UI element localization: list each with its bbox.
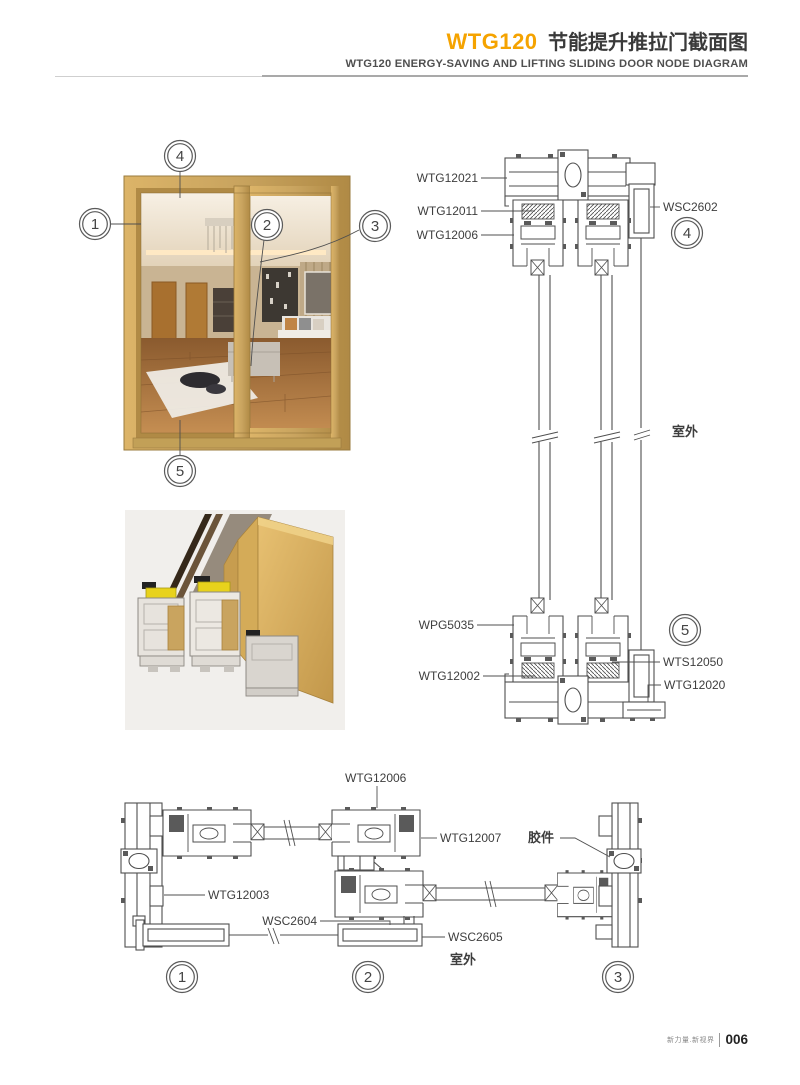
callout-4: 4 [176,148,184,165]
profile-render [125,510,345,730]
section-circle-1: 1 [178,969,186,986]
sash-row1-middle [332,807,420,859]
catalog-page: WTG120 节能提升推拉门截面图 WTG120 ENERGY-SAVING A… [0,0,800,1085]
label-wsc2605: WSC2605 [448,930,503,944]
glue-part-leader [560,838,610,857]
label-wpg5035: WPG5035 [419,618,475,632]
page-number: 006 [725,1032,748,1047]
sash-row2-middle [335,868,423,920]
page-header: WTG120 节能提升推拉门截面图 WTG120 ENERGY-SAVING A… [345,26,748,70]
hs-label-wtg12007: WTG12007 [440,831,502,845]
label-wtg12021: WTG12021 [417,171,479,185]
bottom-sash-right [575,616,631,682]
page-subtitle: WTG120 ENERGY-SAVING AND LIFTING SLIDING… [345,58,748,70]
callout-5: 5 [176,463,184,480]
door-photo [124,176,350,450]
label-wts12050: WTS12050 [663,655,723,669]
header-rule-left [55,76,262,77]
label-wtg12006: WTG12006 [417,228,479,242]
label-glue-part: 胶件 [528,830,554,845]
title-chinese: 节能提升推拉门截面图 [548,32,748,54]
top-sash-right [575,200,631,266]
label-wtg12011: WTG12011 [418,204,479,218]
callout-3: 3 [371,218,379,235]
label-wsc2604: WSC2604 [262,914,317,928]
footer-slogan: 新力量.新视界 [667,1035,714,1045]
vertical-section: WTG12021 WTG12011 WTG12006 WSC2602 4 室外 … [417,150,726,724]
footer-divider [719,1033,720,1047]
label-wtg12020: WTG12020 [664,678,726,692]
top-sash-left [510,200,566,266]
outdoor-label-vertical: 室外 [672,424,698,439]
label-wsc2602: WSC2602 [663,200,718,214]
label-wtg12003: WTG12003 [208,888,270,902]
callout-2: 2 [263,217,271,234]
section-circle-5: 5 [681,622,689,639]
horizontal-section: WTG12006 WTG12007 胶件 WTG12003 WSC2604 WS… [121,771,642,993]
outdoor-label-horizontal: 室外 [450,952,476,967]
page-title: WTG120 节能提升推拉门截面图 [345,26,748,55]
bottom-sash-left [510,616,566,682]
callout-1: 1 [91,216,99,233]
page-footer: 新力量.新视界 006 [667,1032,748,1047]
header-rule-right [262,75,748,77]
label-wtg12002: WTG12002 [419,669,481,683]
title-product-code: WTG120 [447,29,538,54]
section-circle-2: 2 [364,969,372,986]
glass-row2 [436,888,545,900]
hs-label-wtg12006: WTG12006 [345,771,407,785]
glass-pane-1 [539,275,550,600]
glass-pane-2 [601,275,612,600]
sash-row1-left [163,807,251,859]
figure-canvas: 1 2 3 4 5 [0,100,800,1000]
glass-row1 [264,827,319,839]
section-circle-4: 4 [683,225,691,242]
section-circle-3: 3 [614,969,622,986]
